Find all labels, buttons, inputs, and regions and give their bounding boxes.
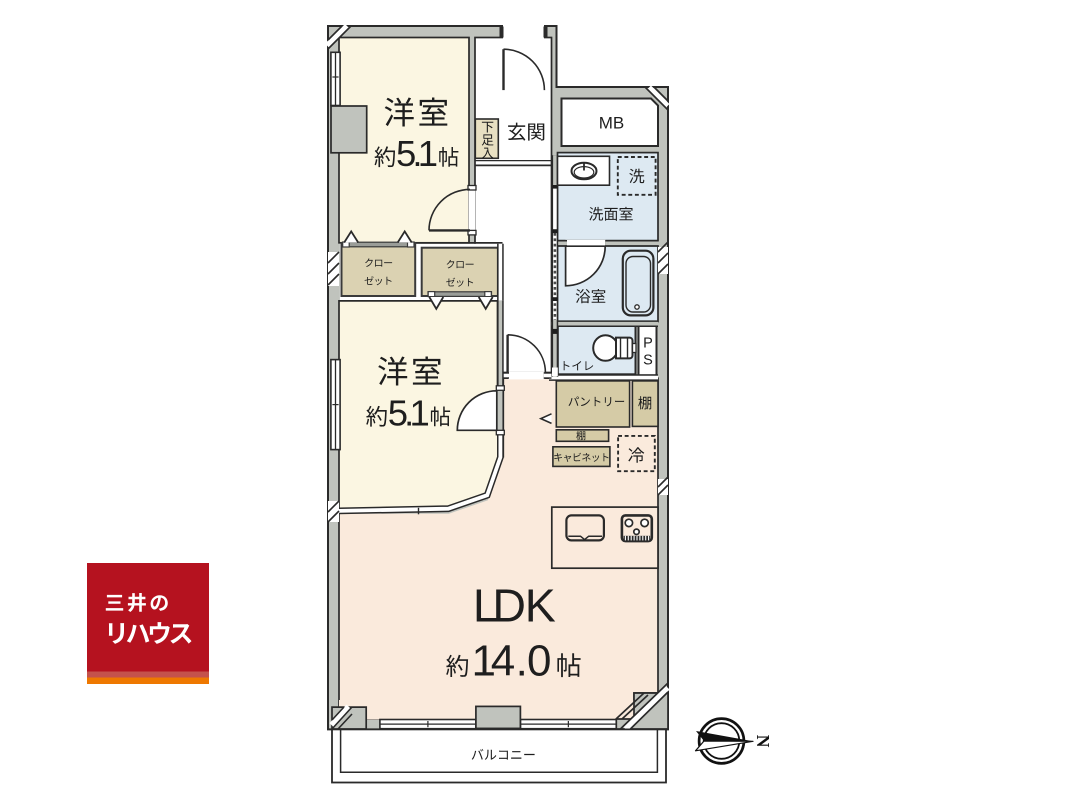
svg-text:P: P xyxy=(643,336,653,352)
svg-text:D: D xyxy=(492,579,526,631)
svg-text:1: 1 xyxy=(409,393,429,434)
svg-text:N: N xyxy=(753,735,773,748)
svg-text:4: 4 xyxy=(491,637,515,686)
svg-text:1: 1 xyxy=(418,133,438,174)
svg-text:0: 0 xyxy=(527,637,551,686)
svg-text:MB: MB xyxy=(599,114,625,133)
svg-text:K: K xyxy=(525,579,556,631)
svg-text:S: S xyxy=(643,353,653,369)
